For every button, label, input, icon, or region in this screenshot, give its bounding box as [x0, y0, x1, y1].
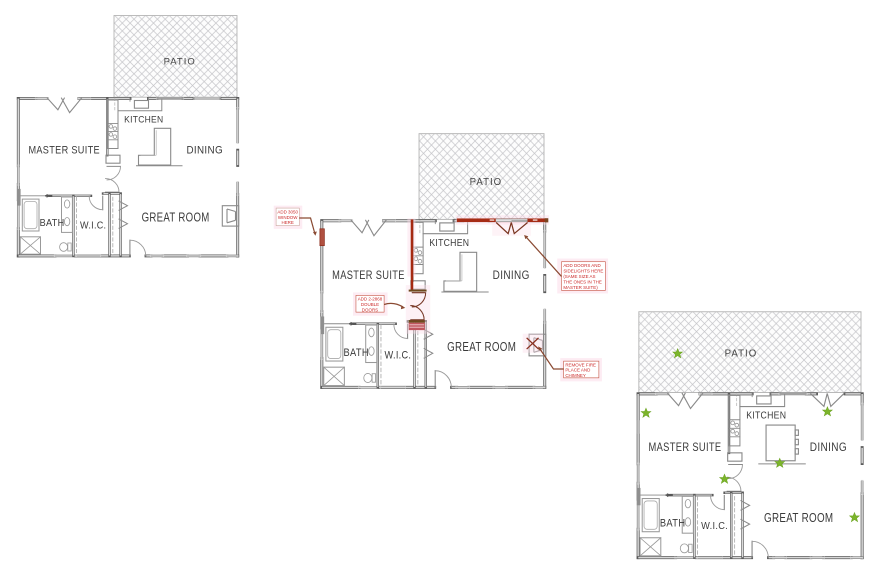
- svg-text:PATIO: PATIO: [470, 177, 503, 188]
- svg-text:THE ONES IN THE: THE ONES IN THE: [563, 279, 602, 284]
- svg-text:PATIO: PATIO: [725, 349, 758, 360]
- svg-text:DOORS: DOORS: [362, 307, 378, 312]
- svg-text:CHIMNEY: CHIMNEY: [565, 373, 586, 378]
- svg-text:(SAME SIZE AS: (SAME SIZE AS: [563, 274, 595, 279]
- svg-text:PATIO: PATIO: [164, 57, 196, 68]
- svg-text:HERE: HERE: [281, 220, 293, 225]
- svg-text:SIDELIGHTS HERE: SIDELIGHTS HERE: [563, 268, 603, 273]
- svg-text:ADD DOORS AND: ADD DOORS AND: [563, 263, 601, 268]
- svg-text:MASTER SUITE): MASTER SUITE): [563, 285, 598, 290]
